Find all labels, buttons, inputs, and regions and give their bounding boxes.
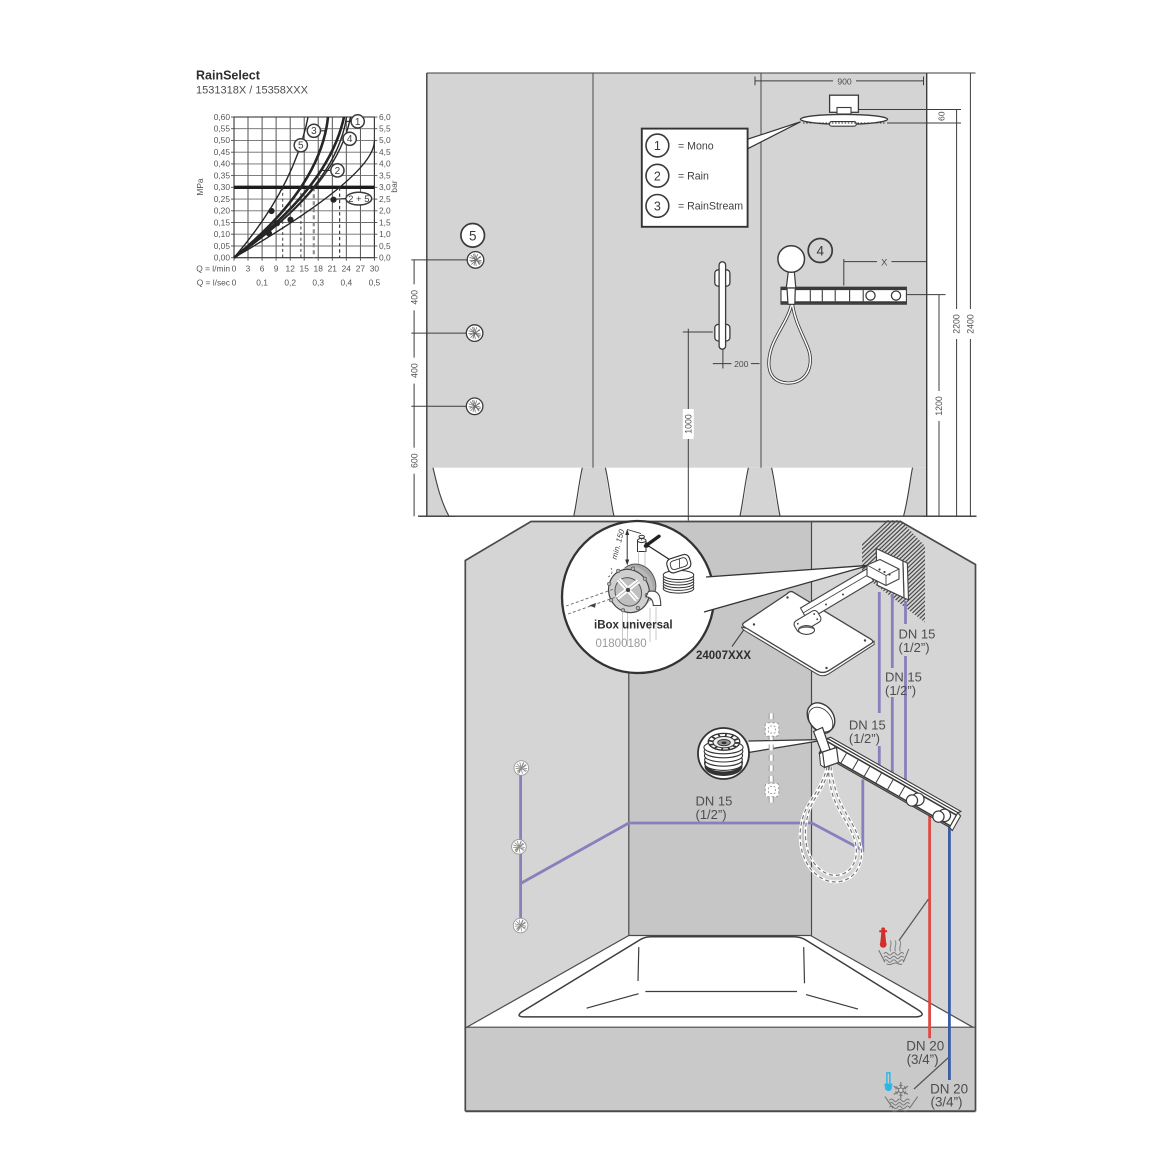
svg-text:0,00: 0,00 xyxy=(214,253,231,263)
svg-text:0,50: 0,50 xyxy=(214,135,231,145)
svg-text:0,1: 0,1 xyxy=(256,278,268,288)
svg-text:900: 900 xyxy=(837,76,852,86)
svg-text:Q = l/min: Q = l/min xyxy=(196,264,230,274)
svg-text:24: 24 xyxy=(342,264,352,274)
svg-text:2200: 2200 xyxy=(952,314,962,334)
svg-text:5: 5 xyxy=(298,141,304,152)
svg-text:2,5: 2,5 xyxy=(379,194,391,204)
svg-text:0: 0 xyxy=(232,264,237,274)
svg-text:2,0: 2,0 xyxy=(379,206,391,216)
svg-text:3: 3 xyxy=(311,126,317,137)
svg-text:400: 400 xyxy=(410,290,420,305)
svg-text:400: 400 xyxy=(410,363,420,378)
svg-text:3: 3 xyxy=(246,264,251,274)
svg-text:0,20: 0,20 xyxy=(214,206,231,216)
svg-text:RainSelect: RainSelect xyxy=(196,69,261,83)
svg-text:(1/2”): (1/2”) xyxy=(696,807,727,822)
svg-text:12: 12 xyxy=(286,264,296,274)
svg-text:18: 18 xyxy=(314,264,324,274)
svg-text:1531318X / 15358XXX: 1531318X / 15358XXX xyxy=(196,85,309,97)
svg-text:= Rain: = Rain xyxy=(678,171,709,183)
svg-text:(1/2”): (1/2”) xyxy=(899,640,930,655)
svg-text:9: 9 xyxy=(274,264,279,274)
svg-text:(3/4”): (3/4”) xyxy=(931,1095,963,1110)
svg-text:1: 1 xyxy=(654,139,661,153)
svg-text:27: 27 xyxy=(356,264,366,274)
svg-text:MPa: MPa xyxy=(195,178,205,196)
svg-text:Q = l/sec: Q = l/sec xyxy=(197,278,230,288)
svg-text:1200: 1200 xyxy=(934,396,944,416)
svg-text:0,55: 0,55 xyxy=(214,124,231,134)
svg-text:3: 3 xyxy=(654,200,661,214)
svg-text:2: 2 xyxy=(654,169,661,183)
svg-text:2400: 2400 xyxy=(965,314,975,334)
svg-text:0,10: 0,10 xyxy=(214,229,231,239)
svg-text:0,60: 0,60 xyxy=(214,112,231,122)
svg-text:(3/4”): (3/4”) xyxy=(907,1052,939,1067)
svg-text:2: 2 xyxy=(335,166,341,177)
svg-text:X: X xyxy=(881,256,888,267)
svg-text:5,5: 5,5 xyxy=(379,124,391,134)
svg-text:0,15: 0,15 xyxy=(214,217,231,227)
svg-text:0,35: 0,35 xyxy=(214,170,231,180)
svg-text:1000: 1000 xyxy=(684,414,694,434)
svg-text:24007XXX: 24007XXX xyxy=(696,650,751,662)
svg-text:0,40: 0,40 xyxy=(214,159,231,169)
svg-text:4,0: 4,0 xyxy=(379,159,391,169)
svg-text:1,5: 1,5 xyxy=(379,217,391,227)
svg-text:200: 200 xyxy=(734,359,749,369)
svg-text:0,3: 0,3 xyxy=(312,278,324,288)
svg-text:600: 600 xyxy=(410,453,420,468)
svg-text:0,2: 0,2 xyxy=(284,278,296,288)
svg-text:4,5: 4,5 xyxy=(379,147,391,157)
svg-text:0: 0 xyxy=(232,278,237,288)
svg-text:0,5: 0,5 xyxy=(369,278,381,288)
svg-text:30: 30 xyxy=(370,264,380,274)
svg-text:6,0: 6,0 xyxy=(379,112,391,122)
svg-text:0,05: 0,05 xyxy=(214,241,231,251)
svg-text:0,30: 0,30 xyxy=(214,182,231,192)
svg-text:iBox universal: iBox universal xyxy=(594,620,673,632)
svg-text:0,5: 0,5 xyxy=(379,241,391,251)
svg-text:bar: bar xyxy=(389,180,399,192)
svg-text:15: 15 xyxy=(300,264,310,274)
svg-text:6: 6 xyxy=(260,264,265,274)
svg-text:1,0: 1,0 xyxy=(379,229,391,239)
svg-text:0,0: 0,0 xyxy=(379,253,391,263)
svg-text:0,25: 0,25 xyxy=(214,194,231,204)
svg-text:= Mono: = Mono xyxy=(678,140,714,152)
svg-text:4: 4 xyxy=(347,134,353,145)
svg-text:5: 5 xyxy=(469,228,477,243)
svg-text:1: 1 xyxy=(355,117,361,128)
svg-text:01800180: 01800180 xyxy=(596,638,647,650)
svg-text:21: 21 xyxy=(328,264,338,274)
svg-text:5,0: 5,0 xyxy=(379,135,391,145)
svg-text:60: 60 xyxy=(937,111,947,121)
svg-text:3,5: 3,5 xyxy=(379,170,391,180)
svg-text:2 + 5: 2 + 5 xyxy=(348,194,369,205)
svg-text:4: 4 xyxy=(816,244,824,259)
svg-text:0,45: 0,45 xyxy=(214,147,231,157)
svg-text:(1/2”): (1/2”) xyxy=(885,683,916,698)
svg-text:= RainStream: = RainStream xyxy=(678,201,743,213)
svg-text:0,4: 0,4 xyxy=(340,278,352,288)
svg-text:(1/2”): (1/2”) xyxy=(849,731,880,746)
